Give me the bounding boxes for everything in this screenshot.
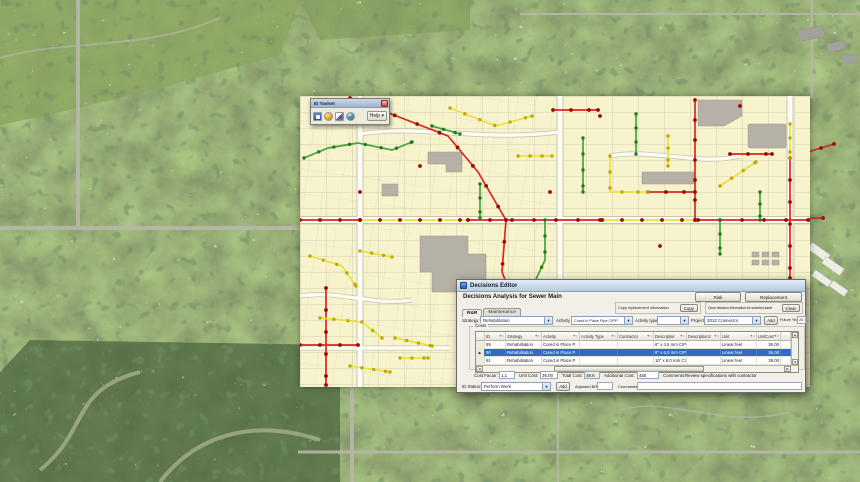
help-menu[interactable]: Help ▾	[367, 111, 387, 121]
scroll-left-icon[interactable]: ◄	[476, 366, 483, 372]
comments-label: Comments:	[663, 373, 685, 378]
globe-icon[interactable]	[346, 112, 355, 121]
column-header-unitcost[interactable]: UnitCost▼=	[757, 332, 781, 340]
filter-sort-icon[interactable]: ▼=	[774, 334, 779, 338]
column-header-id[interactable]: ID▼=	[485, 332, 506, 340]
adjusted-brl-field[interactable]	[597, 382, 613, 390]
copy-info-label: Copy replacement information	[618, 306, 669, 310]
cost-factor-label: Cost Factor:	[474, 373, 498, 378]
id-status-dropdown[interactable]: Perform Work	[481, 382, 551, 391]
filter-sort-icon[interactable]: ▼=	[647, 334, 652, 338]
filter-sort-icon[interactable]: ▼=	[714, 334, 719, 338]
activity-type-dropdown[interactable]	[657, 316, 689, 325]
column-header-strategy[interactable]: Strategy▼=	[506, 332, 542, 340]
column-header-activity[interactable]: Activity▼=	[542, 332, 580, 340]
filter-sort-icon[interactable]: ▼=	[750, 334, 755, 338]
toolset-title: ID Toolset	[314, 101, 381, 106]
grid-header-row: ID▼=Strategy▼=Activity▼=Activity Type▼=C…	[476, 332, 798, 341]
unit-cost-label: Unit Cost:	[519, 373, 538, 378]
add-status-button[interactable]: Add	[556, 382, 570, 391]
add-project-button[interactable]: Add	[764, 316, 778, 325]
project-label: Project	[691, 318, 704, 323]
window-icon	[460, 282, 467, 289]
screen: ID Toolset × Help ▾ Decisions Editor Dec…	[0, 0, 860, 482]
strategy-dropdown[interactable]: Rehabilitation	[480, 316, 553, 325]
dialog-tabs: R&RMaintenance	[462, 305, 522, 316]
scroll-up-icon[interactable]: ▲	[792, 332, 798, 338]
costs-group-label: Costs	[473, 323, 488, 328]
dialog-titlebar[interactable]: Decisions Editor	[457, 280, 805, 292]
filter-sort-icon[interactable]: ▼=	[680, 334, 685, 338]
tab-maintenance[interactable]: Maintenance	[483, 308, 520, 316]
total-cost-label: Total Cost:	[562, 373, 583, 378]
clear-info-label: Clear decision information for selected …	[708, 306, 772, 310]
filter-sort-icon[interactable]: ▼=	[573, 334, 578, 338]
filter-sort-icon[interactable]: ▼=	[611, 334, 616, 338]
id-tool-icon[interactable]	[313, 112, 322, 121]
decisions-grid: ID▼=Strategy▼=Activity▼=Activity Type▼=C…	[475, 331, 799, 373]
toolset-titlebar[interactable]: ID Toolset ×	[311, 99, 389, 108]
cost-factor-field[interactable]	[499, 371, 515, 379]
column-header-contractor[interactable]: Contractor▼=	[618, 332, 654, 340]
grid-row-90[interactable]: ▶90RehabilitationCured in Place P.8" x 6…	[476, 349, 798, 357]
scroll-down-icon[interactable]: ▼	[792, 359, 798, 365]
replacement-button[interactable]: Replacement	[745, 292, 802, 302]
adjusted-brl-label: Adjusted BRL	[575, 384, 599, 389]
help-label: Help	[370, 113, 380, 119]
close-icon[interactable]: ×	[381, 100, 388, 107]
column-header-description[interactable]: Description▼=	[654, 332, 687, 340]
project-dropdown[interactable]: 2012 Connector	[704, 316, 761, 325]
map-tips-icon[interactable]	[335, 112, 344, 121]
toolset-window: ID Toolset × Help ▾	[310, 98, 390, 125]
risk-button[interactable]: Risk	[695, 292, 741, 302]
additional-cost-field[interactable]	[637, 371, 659, 379]
identify-icon[interactable]	[324, 112, 333, 121]
unit-cost-field[interactable]	[540, 371, 558, 379]
scroll-right-icon[interactable]: ►	[784, 366, 791, 372]
id-status-label: ID Status:	[462, 384, 481, 389]
status-comments-label: Comments	[618, 384, 637, 389]
dialog-title: Decisions Editor	[470, 283, 517, 289]
status-comments-field[interactable]	[637, 382, 802, 390]
grid-row-91[interactable]: 91RehabilitationCured in Place P.10" x 6…	[476, 357, 798, 365]
column-header-unit[interactable]: Unit▼=	[721, 332, 757, 340]
activity-label: Activity	[556, 318, 570, 323]
column-header-description2[interactable]: Description2▼=	[687, 332, 721, 340]
grid-vscrollbar[interactable]: ▲ ▼	[791, 332, 798, 365]
future-year-field[interactable]	[797, 316, 806, 324]
activity-dropdown[interactable]: Cured in Place Pipe CIPP	[571, 316, 633, 325]
hscroll-thumb[interactable]	[554, 366, 704, 372]
toolset-toolbar: Help ▾	[311, 108, 389, 124]
column-header-activity type[interactable]: Activity Type▼=	[580, 332, 618, 340]
activity-type-label: Activity type	[635, 318, 657, 323]
filter-sort-icon[interactable]: ▼=	[535, 334, 540, 338]
copy-button[interactable]: Copy	[680, 304, 698, 312]
total-cost-field[interactable]	[584, 371, 600, 379]
clear-decision-group: Clear decision information for selected …	[705, 302, 803, 314]
dialog-heading: Decisions Analysis for Sewer Main	[463, 294, 562, 300]
clear-button[interactable]: Clear	[782, 304, 801, 312]
filter-sort-icon[interactable]: ▼=	[499, 334, 504, 338]
decisions-editor-dialog: Decisions Editor Decisions Analysis for …	[456, 279, 806, 393]
additional-cost-label: Additional Cost:	[604, 373, 635, 378]
comments-value: Review specifications with contractor	[685, 373, 757, 378]
copy-replacement-group: Copy replacement information Copy	[615, 302, 701, 314]
grid-row-89[interactable]: 89RehabilitationCured in Place P.6" x 4.…	[476, 341, 798, 349]
grid-body: 89RehabilitationCured in Place P.6" x 4.…	[476, 341, 798, 365]
